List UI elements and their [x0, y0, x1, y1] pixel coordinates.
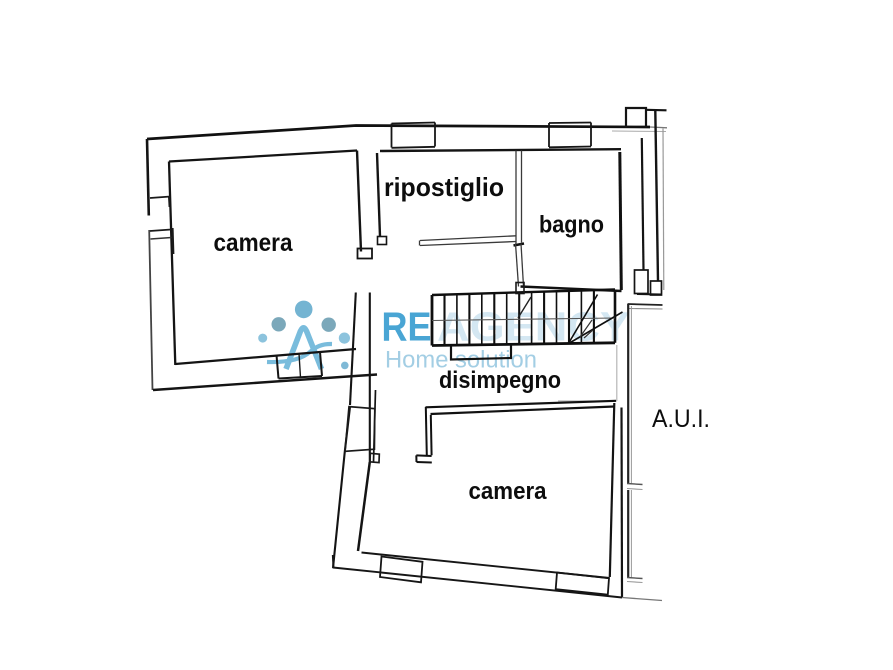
- svg-text:ripostiglio: ripostiglio: [384, 172, 504, 202]
- svg-text:bagno: bagno: [539, 212, 604, 239]
- svg-text:camera: camera: [214, 229, 294, 257]
- svg-text:camera: camera: [469, 478, 548, 505]
- svg-text:A.U.I.: A.U.I.: [652, 405, 710, 433]
- svg-text:RE: RE: [382, 304, 432, 350]
- svg-text:disimpegno: disimpegno: [439, 367, 561, 394]
